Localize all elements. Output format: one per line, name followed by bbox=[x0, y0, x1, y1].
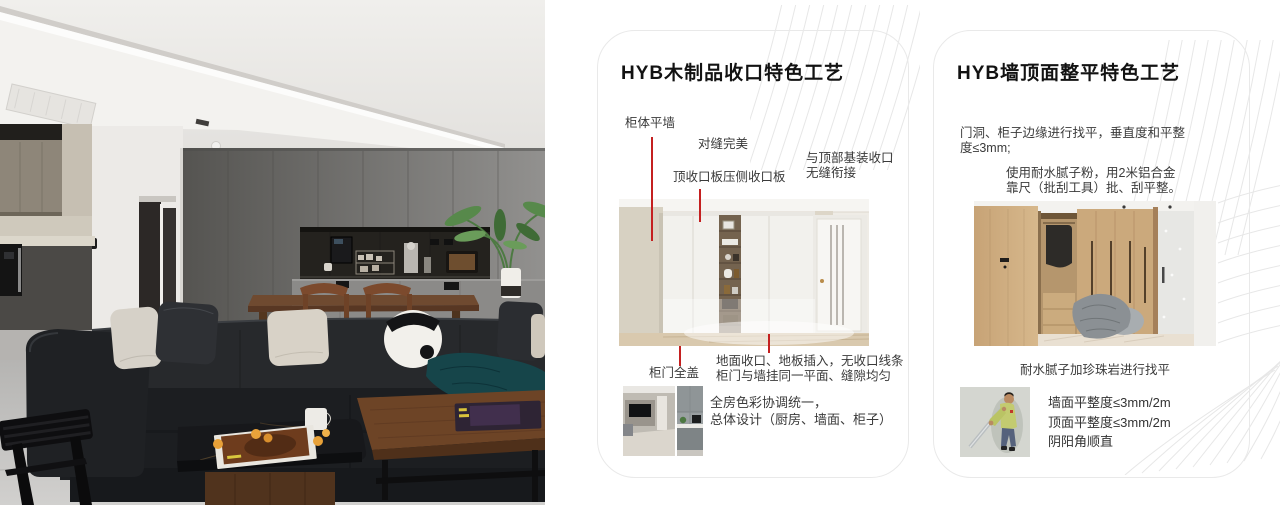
worker-photo bbox=[960, 387, 1030, 457]
living-room-photo bbox=[0, 0, 545, 505]
card-wood-finishing: HYB木制品收口特色工艺 柜体平墙 对缝完美 顶收口板压侧收口板 与顶部基装收口… bbox=[597, 30, 909, 478]
paragraph-putty-ruler: 使用耐水腻子粉，用2米铝合金 靠尺（批刮工具）批、刮平整。 bbox=[1006, 166, 1181, 196]
note-color-unity-line1: 全房色彩协调统一， bbox=[710, 395, 827, 410]
annotation-ceiling-joint-line1: 与顶部基装收口 bbox=[806, 151, 894, 166]
paragraph-door-cabinet-leveling: 门洞、柜子边缘进行找平，垂直度和平整 度≤3mm; bbox=[960, 126, 1185, 156]
card-wall-leveling: HYB墙顶面整平特色工艺 门洞、柜子边缘进行找平，垂直度和平整 度≤3mm; 使… bbox=[933, 30, 1250, 478]
card1-title: HYB木制品收口特色工艺 bbox=[621, 58, 844, 85]
leader-line-floor-closing bbox=[768, 334, 770, 353]
metric-wall-flatness: 墙面平整度≤3mm/2m bbox=[1048, 393, 1171, 413]
leader-line-top-board bbox=[699, 189, 701, 222]
annotation-floor-closing-line1: 地面收口、地板插入，无收口线条 bbox=[716, 354, 904, 369]
annotation-ceiling-joint: 与顶部基装收口 无缝衔接 bbox=[806, 151, 894, 181]
annotation-cabinet-flush-wall: 柜体平墙 bbox=[625, 116, 675, 131]
thumbnail-photos bbox=[623, 386, 703, 456]
leader-line-door-cover bbox=[679, 346, 681, 366]
metrics-list: 墙面平整度≤3mm/2m 顶面平整度≤3mm/2m 阴阳角顺直 bbox=[1048, 393, 1171, 452]
thumbnail-living-room bbox=[623, 386, 675, 456]
hallway-photo bbox=[974, 201, 1216, 346]
annotation-door-cover: 柜门全盖 bbox=[649, 366, 699, 381]
metric-ceiling-flatness: 顶面平整度≤3mm/2m bbox=[1048, 413, 1171, 433]
card2-title: HYB墙顶面整平特色工艺 bbox=[957, 58, 1180, 85]
annotation-floor-closing: 地面收口、地板插入，无收口线条 柜门与墙挂同一平面、缝隙均匀 bbox=[716, 354, 904, 384]
paragraph1-line1: 门洞、柜子边缘进行找平，垂直度和平整 bbox=[960, 126, 1185, 141]
paragraph2-line2: 靠尺（批刮工具）批、刮平整。 bbox=[1006, 181, 1181, 196]
caption-perlite-putty: 耐水腻子加珍珠岩进行找平 bbox=[974, 359, 1216, 378]
annotation-floor-closing-line2: 柜门与墙挂同一平面、缝隙均匀 bbox=[716, 369, 904, 384]
paragraph2-line1: 使用耐水腻子粉，用2米铝合金 bbox=[1006, 166, 1181, 181]
annotation-perfect-seam: 对缝完美 bbox=[698, 137, 748, 152]
poster: HYB木制品收口特色工艺 柜体平墙 对缝完美 顶收口板压侧收口板 与顶部基装收口… bbox=[0, 0, 1280, 505]
metric-corners-straight: 阴阳角顺直 bbox=[1048, 432, 1171, 452]
note-color-unity-line2: 总体设计（厨房、墙面、柜子） bbox=[710, 412, 892, 427]
annotation-ceiling-joint-line2: 无缝衔接 bbox=[806, 166, 894, 181]
paragraph1-line2: 度≤3mm; bbox=[960, 141, 1185, 156]
leader-line-cabinet-wall bbox=[651, 137, 653, 241]
living-room-photo-art bbox=[0, 0, 545, 505]
annotation-top-closing-board: 顶收口板压侧收口板 bbox=[673, 170, 786, 185]
cabinet-render-image bbox=[619, 199, 869, 346]
thumbnail-kitchen bbox=[677, 386, 703, 456]
